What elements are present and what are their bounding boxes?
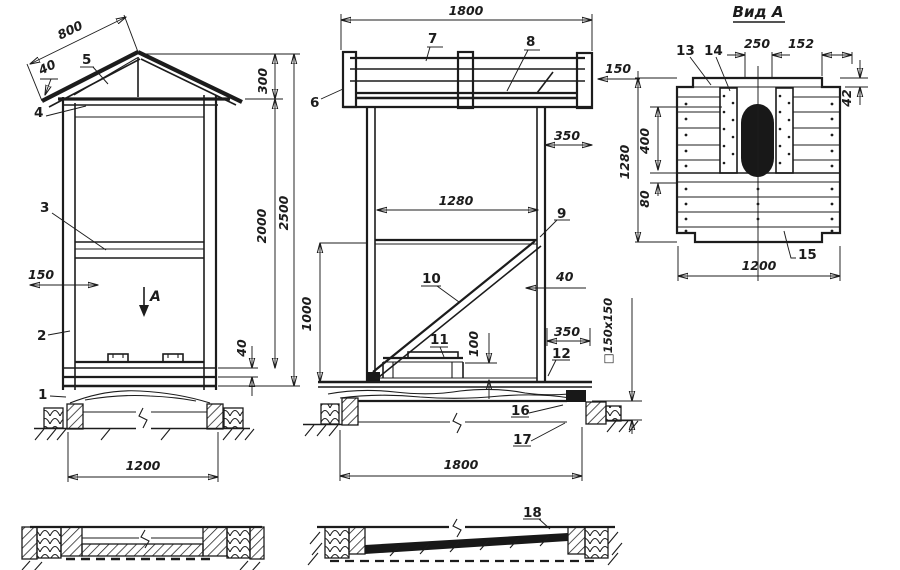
- dim-lower-height: 1000: [299, 296, 314, 331]
- view-title: Вид А: [733, 3, 784, 21]
- part-label-15: 15: [798, 247, 817, 263]
- dim-roof-overhang-right: 150: [605, 61, 631, 76]
- dim-post-section: □150x150: [601, 298, 615, 364]
- part-label-7: 7: [428, 31, 437, 47]
- dim-hatch-width: 250: [744, 36, 770, 51]
- pit-section-middle: [308, 519, 622, 565]
- dim-top-width: 1800: [449, 3, 484, 18]
- dim-floor-thickness: 40: [234, 339, 249, 358]
- part-label-17: 17: [513, 432, 532, 448]
- dim-hatch-height: 400: [637, 128, 652, 155]
- view-direction-letter: A: [149, 289, 161, 305]
- dim-seat-height: 100: [466, 331, 481, 357]
- part-label-3: 3: [40, 200, 49, 216]
- rear-view-texts: Вид А 13 14 250 152 42 1280 400 80 15 12…: [617, 3, 854, 273]
- part-label-18: 18: [523, 505, 542, 521]
- part-label-6: 6: [310, 95, 319, 111]
- part-label-14: 14: [704, 43, 723, 59]
- dim-post-thickness: 40: [555, 269, 574, 284]
- part-label-10: 10: [422, 271, 441, 287]
- front-view-linework: [34, 52, 254, 440]
- dim-post-width: 150: [28, 267, 54, 282]
- part-label-2: 2: [37, 328, 46, 344]
- technical-drawing-page: 800 40 5 4 300 2000 2500 3 150 A 2 1 40 …: [0, 0, 900, 570]
- dim-total-height: 2500: [276, 195, 291, 230]
- dim-panel-height: 1280: [617, 144, 632, 179]
- part-label-9: 9: [557, 206, 566, 222]
- part-label-12: 12: [552, 346, 571, 362]
- dim-panel-width: 1200: [742, 258, 777, 273]
- side-view-linework: [303, 52, 638, 436]
- part-label-4: 4: [34, 105, 43, 121]
- part-label-1: 1: [38, 387, 47, 403]
- dim-porch-depth: 350: [554, 324, 580, 339]
- part-label-13: 13: [676, 43, 695, 59]
- dim-inner-width: 1280: [439, 193, 474, 208]
- part-label-5: 5: [82, 52, 91, 68]
- dim-corner-offset: 152: [788, 36, 814, 51]
- part-label-11: 11: [430, 332, 449, 348]
- dim-gable-height: 300: [255, 68, 270, 94]
- dim-base-depth: 1800: [444, 457, 479, 472]
- part-label-8: 8: [526, 34, 535, 50]
- pit-section-left: [22, 527, 264, 570]
- dim-wall-height: 2000: [254, 208, 269, 243]
- drawing-canvas: 800 40 5 4 300 2000 2500 3 150 A 2 1 40 …: [0, 0, 900, 570]
- dim-base-width: 1200: [126, 458, 161, 473]
- side-view-dimensions: [320, 14, 642, 529]
- dim-board-height: 80: [637, 190, 652, 208]
- dim-roof-side-offset: 350: [554, 128, 580, 143]
- part-label-16: 16: [511, 403, 530, 419]
- dim-step-height: 42: [839, 89, 854, 107]
